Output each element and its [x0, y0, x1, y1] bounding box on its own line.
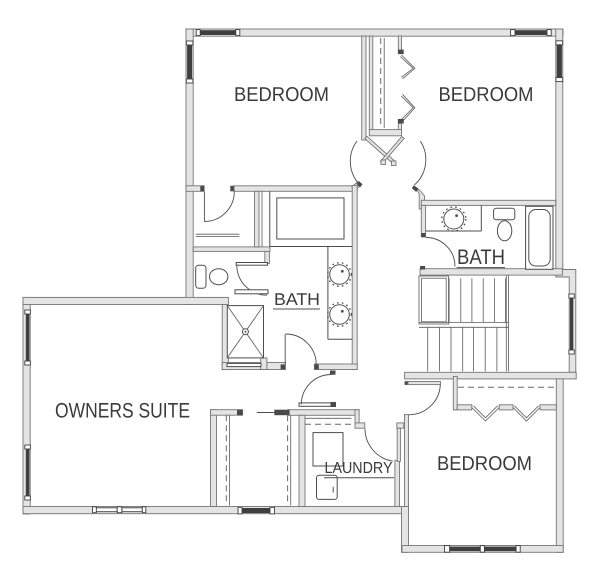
- svg-text:LAUNDRY: LAUNDRY: [325, 460, 393, 477]
- svg-text:BEDROOM: BEDROOM: [234, 84, 329, 106]
- svg-text:BEDROOM: BEDROOM: [437, 453, 532, 475]
- svg-text:BATH: BATH: [274, 290, 320, 309]
- svg-text:BATH: BATH: [457, 246, 505, 269]
- svg-text:OWNERS SUITE: OWNERS SUITE: [55, 400, 190, 423]
- svg-text:BEDROOM: BEDROOM: [439, 84, 534, 106]
